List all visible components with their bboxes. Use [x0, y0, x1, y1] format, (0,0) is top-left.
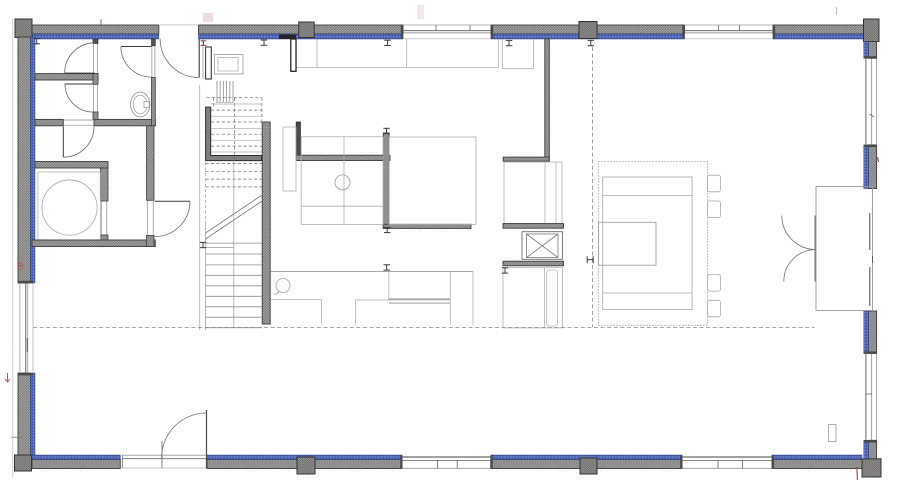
svg-text:00: 00	[18, 262, 25, 270]
